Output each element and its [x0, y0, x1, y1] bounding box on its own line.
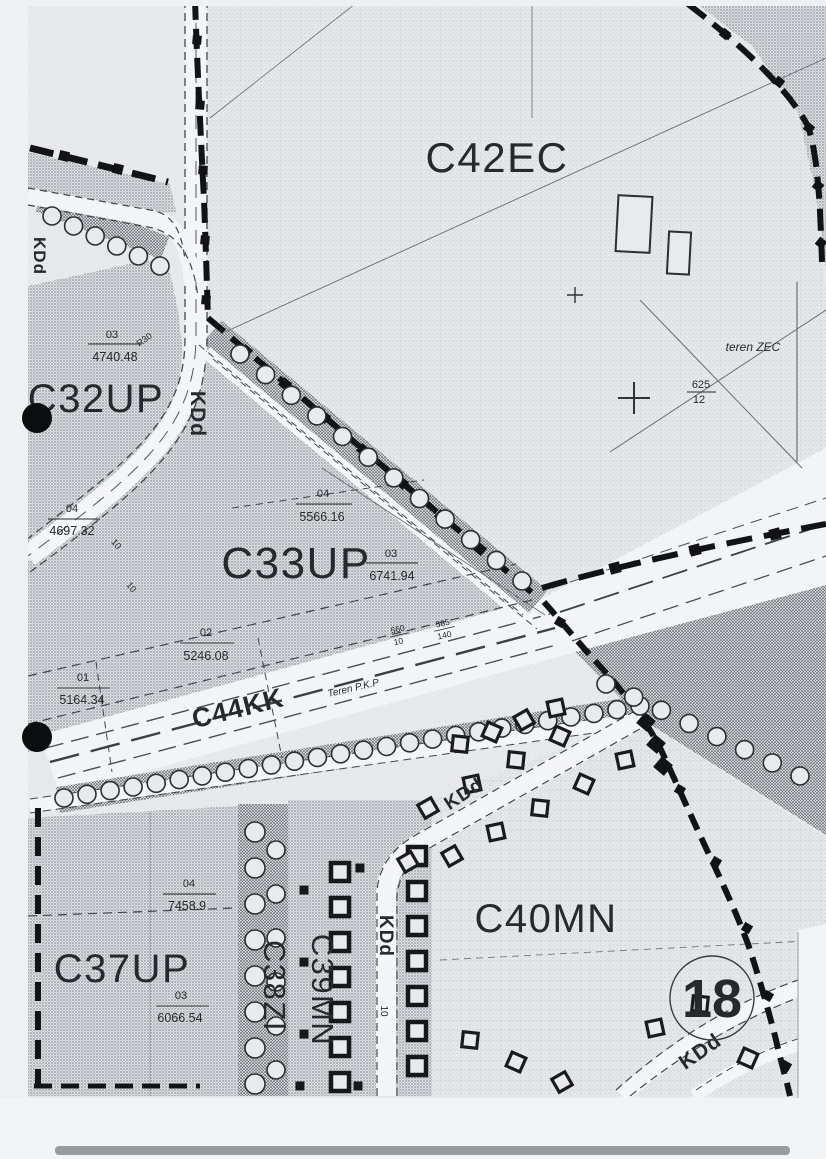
tree-icon [401, 734, 419, 752]
punch-hole-bottom [22, 722, 52, 752]
tree-icon [708, 728, 726, 746]
tree-icon [334, 428, 352, 446]
parcel-area: 6066.54 [157, 1011, 202, 1025]
building-square [408, 952, 426, 970]
zoning-map-svg: C42EC C32UP C33UP C37UP C40MN C44KK C38Z… [0, 0, 826, 1159]
parcel-no: 01 [77, 672, 89, 684]
parcel-no: 03 [175, 990, 187, 1002]
tree-icon [147, 774, 165, 792]
tree-icon [257, 366, 275, 384]
tree-icon [308, 407, 326, 425]
tree-icon [262, 756, 280, 774]
tree-icon [625, 688, 643, 706]
tree-icon [267, 885, 285, 903]
tree-icon [285, 752, 303, 770]
building-diamond [487, 823, 505, 841]
tree-icon [436, 510, 454, 528]
road-label-kdd-1: KDd [186, 391, 209, 437]
tree-icon [378, 738, 396, 756]
building-dot [356, 864, 365, 873]
tree-icon [355, 741, 373, 759]
building-diamond [616, 751, 634, 769]
building-square [408, 1057, 426, 1075]
building-diamond [547, 699, 565, 717]
parcel-no: 04 [183, 878, 195, 890]
scanned-zoning-map-page: C42EC C32UP C33UP C37UP C40MN C44KK C38Z… [0, 0, 826, 1159]
zone-label-c33up: C33UP [221, 539, 370, 588]
road-label-kdd-2: KDd [375, 915, 396, 957]
tree-icon [78, 785, 96, 803]
plot-number-numerator: 625 [692, 379, 710, 391]
tree-icon [736, 741, 754, 759]
tree-icon [411, 490, 429, 508]
tree-icon [239, 760, 257, 778]
zone-label-c38zi: C38ZI [257, 940, 292, 1032]
sheet-number: 18 [682, 969, 742, 1029]
zone-label-c39mn: C39MN [305, 934, 340, 1047]
terrain-label-zec: teren ZEC [726, 340, 781, 354]
parcel-no: 02 [200, 627, 212, 639]
parcel-area: 6741.94 [369, 569, 414, 583]
parcel-no: 04 [317, 488, 329, 500]
tree-icon [216, 763, 234, 781]
tree-icon [245, 894, 265, 914]
parcel-no: 03 [106, 329, 118, 341]
dimension-label-10c: 10 [378, 1005, 389, 1017]
tree-icon [487, 551, 505, 569]
parcel-area: 7458.9 [168, 899, 206, 913]
boundary-marker [198, 165, 208, 175]
tree-icon [245, 1038, 265, 1058]
tree-icon [282, 386, 300, 404]
parcel-area: 5566.16 [299, 510, 344, 524]
building-diamond [646, 1019, 664, 1037]
tree-icon [597, 675, 615, 693]
tree-icon [359, 448, 377, 466]
top-margin [0, 0, 826, 6]
road-label-kdd-5: KDd [30, 237, 49, 275]
building-diamond [452, 736, 468, 752]
tree-icon [385, 469, 403, 487]
building-diamond [462, 1032, 478, 1048]
tree-icon [267, 1061, 285, 1079]
building-square [408, 882, 426, 900]
building-diamond [532, 800, 548, 816]
parcel-area: 4740.48 [92, 350, 137, 364]
building-dot [296, 1082, 305, 1091]
tree-icon [245, 822, 265, 842]
tree-icon [231, 345, 249, 363]
tree-icon [462, 531, 480, 549]
parcel-area: 5164.34 [59, 693, 104, 707]
left-margin [0, 0, 28, 1159]
boundary-marker [201, 295, 211, 305]
parcel-area: 4697.32 [49, 524, 94, 538]
scanner-shadow [55, 1146, 790, 1155]
tree-icon [763, 754, 781, 772]
building-square [408, 987, 426, 1005]
parcel-no: 04 [66, 503, 78, 515]
parcel-area: 5246.08 [183, 649, 228, 663]
tree-icon [101, 782, 119, 800]
building-square [331, 1073, 349, 1091]
tree-icon [245, 1074, 265, 1094]
right-bottom-margin [798, 924, 826, 1159]
tree-icon [608, 701, 626, 719]
tree-icon [193, 767, 211, 785]
tree-icon [245, 858, 265, 878]
tree-icon [86, 227, 104, 245]
tree-icon [652, 701, 670, 719]
tree-icon [424, 730, 442, 748]
building-square [331, 898, 349, 916]
boundary-marker [200, 235, 210, 245]
zone-label-c40mn: C40MN [474, 897, 617, 941]
tree-icon [267, 841, 285, 859]
building-dot [300, 886, 309, 895]
tree-icon [124, 778, 142, 796]
tree-icon [308, 749, 326, 767]
building-diamond [508, 752, 524, 768]
building-dot [354, 1082, 363, 1091]
tree-icon [65, 217, 83, 235]
tree-icon [55, 789, 73, 807]
building-square [408, 917, 426, 935]
tree-icon [680, 714, 698, 732]
tree-icon [513, 572, 531, 590]
zone-label-c42ec: C42EC [426, 134, 569, 181]
tree-icon [129, 247, 147, 265]
tree-icon [332, 745, 350, 763]
zone-label-c37up: C37UP [54, 947, 190, 991]
punch-hole-top [22, 403, 52, 433]
tree-icon [170, 771, 188, 789]
building-square [408, 1022, 426, 1040]
building-square [331, 863, 349, 881]
tree-icon [791, 767, 809, 785]
tree-icon [108, 237, 126, 255]
tree-icon [585, 704, 603, 722]
parcel-no: 03 [385, 548, 397, 560]
boundary-marker [195, 100, 205, 110]
boundary-marker [192, 35, 202, 45]
plot-number-denominator: 12 [693, 394, 705, 406]
tree-icon [43, 207, 61, 225]
tree-icon [151, 257, 169, 275]
